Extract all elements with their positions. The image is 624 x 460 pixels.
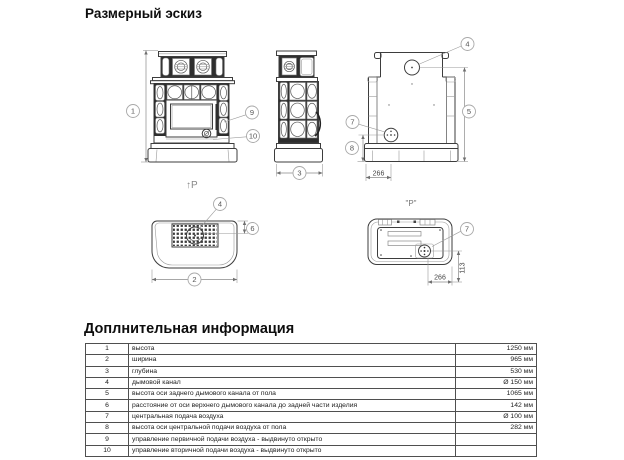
view-direction-label: ↑Р [186,180,198,191]
row-value [456,434,537,445]
row-number: 3 [86,366,129,377]
callout-9: 9 [246,106,259,119]
callout-7-bottom: 7 [461,223,474,236]
table-row: 2 ширина 965 мм [86,355,537,366]
p-view: "Р" [368,199,467,286]
side-view [275,51,323,177]
svg-text:5: 5 [467,107,471,116]
row-number: 2 [86,355,129,366]
row-description: центральная подача воздуха [129,411,456,422]
row-value [456,445,537,456]
row-value: 965 мм [456,355,537,366]
table-row: 3 глубина 530 мм [86,366,537,377]
svg-text:3: 3 [297,169,301,178]
table-row: 9 управление первичной подачи воздуха - … [86,434,537,445]
stove-base [148,144,237,163]
info-section-title: Доплнительная информация [84,321,294,337]
row-value: 282 мм [456,423,537,434]
svg-text:6: 6 [250,224,254,233]
row-number: 7 [86,411,129,422]
side-tile-grid [280,83,317,139]
row-description: глубина [129,366,456,377]
rosette-tile [195,59,212,76]
row-number: 6 [86,400,129,411]
rosette-tile [173,59,190,76]
callout-2: 2 [188,273,201,286]
rosette-tile [282,58,297,75]
callout-10: 10 [247,130,260,143]
row-number: 1 [86,344,129,355]
front-view: ↑Р [141,51,247,192]
stove-door [166,100,218,138]
callout-4-back: 4 [461,38,474,51]
table-row: 1 высота 1250 мм [86,344,537,355]
row-value: 142 мм [456,400,537,411]
table-row: 4 дымовой канал Ø 150 мм [86,377,537,388]
row-value: 1250 мм [456,344,537,355]
callout-4-top: 4 [214,198,227,211]
row-number: 9 [86,434,129,445]
row-description: высота оси центральной подачи воздуха от… [129,423,456,434]
svg-text:7: 7 [465,225,469,234]
svg-text:10: 10 [249,132,257,141]
row-number: 8 [86,423,129,434]
callout-1: 1 [127,105,140,118]
callout-8: 8 [346,142,359,155]
dimensional-sketch-page: Размерный эскиз [0,0,624,460]
svg-text:4: 4 [465,40,469,49]
row-description: высота [129,344,456,355]
upper-tile-row [167,85,217,100]
info-table: 1 высота 1250 мм 2 ширина 965 мм 3 глуби… [85,343,537,457]
svg-text:8: 8 [350,144,354,153]
top-view [152,209,248,283]
dim-113-bottom: 113 [460,262,467,273]
row-description: управление первичной подачи воздуха - вы… [129,434,456,445]
table-row: 7 центральная подача воздуха Ø 100 мм [86,411,537,422]
back-base [365,144,459,162]
row-number: 4 [86,377,129,388]
row-description: дымовой канал [129,377,456,388]
svg-text:2: 2 [192,275,196,284]
row-value: 1065 мм [456,389,537,400]
row-description: ширина [129,355,456,366]
row-value: Ø 150 мм [456,377,537,388]
table-row: 8 высота оси центральной подачи воздуха … [86,423,537,434]
dimensional-sketch: ↑Р [0,0,624,335]
table-row: 5 высота оси заднего дымового канала от … [86,389,537,400]
row-value: Ø 100 мм [456,411,537,422]
row-description: управление вторичной подачи воздуха - вы… [129,445,456,456]
p-view-label: "Р" [405,199,416,208]
dim-266-back: 266 [373,171,385,178]
svg-text:1: 1 [131,107,135,116]
top-grille [172,224,218,247]
row-description: расстояние от оси верхнего дымового кана… [129,400,456,411]
dim-266-bottom: 266 [434,275,446,282]
callout-7-back: 7 [346,116,359,129]
table-row: 6 расстояние от оси верхнего дымового ка… [86,400,537,411]
row-description: высота оси заднего дымового канала от по… [129,389,456,400]
back-view: 266 [358,46,469,181]
callout-5: 5 [463,105,476,118]
row-value: 530 мм [456,366,537,377]
svg-text:9: 9 [250,108,254,117]
row-number: 10 [86,445,129,456]
callout-6: 6 [247,223,259,235]
svg-text:7: 7 [350,118,354,127]
callout-3: 3 [293,167,306,180]
table-row: 10 управление вторичной подачи воздуха -… [86,445,537,456]
row-number: 5 [86,389,129,400]
svg-text:4: 4 [218,200,222,209]
